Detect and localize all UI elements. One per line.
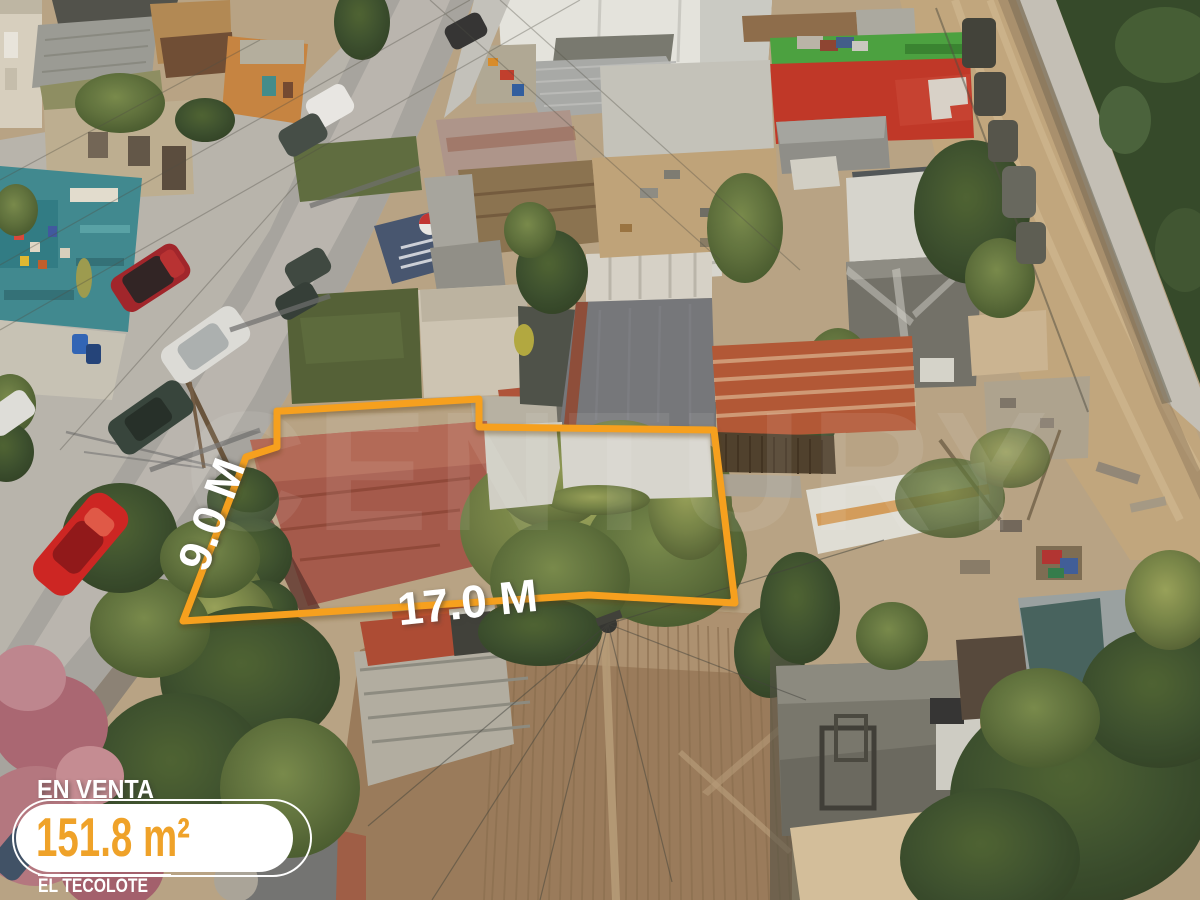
svg-text:CENTURY: CENTURY — [184, 377, 1055, 567]
svg-text:EL TECOLOTE: EL TECOLOTE — [38, 876, 148, 897]
svg-text:151.8 m²: 151.8 m² — [36, 806, 190, 868]
